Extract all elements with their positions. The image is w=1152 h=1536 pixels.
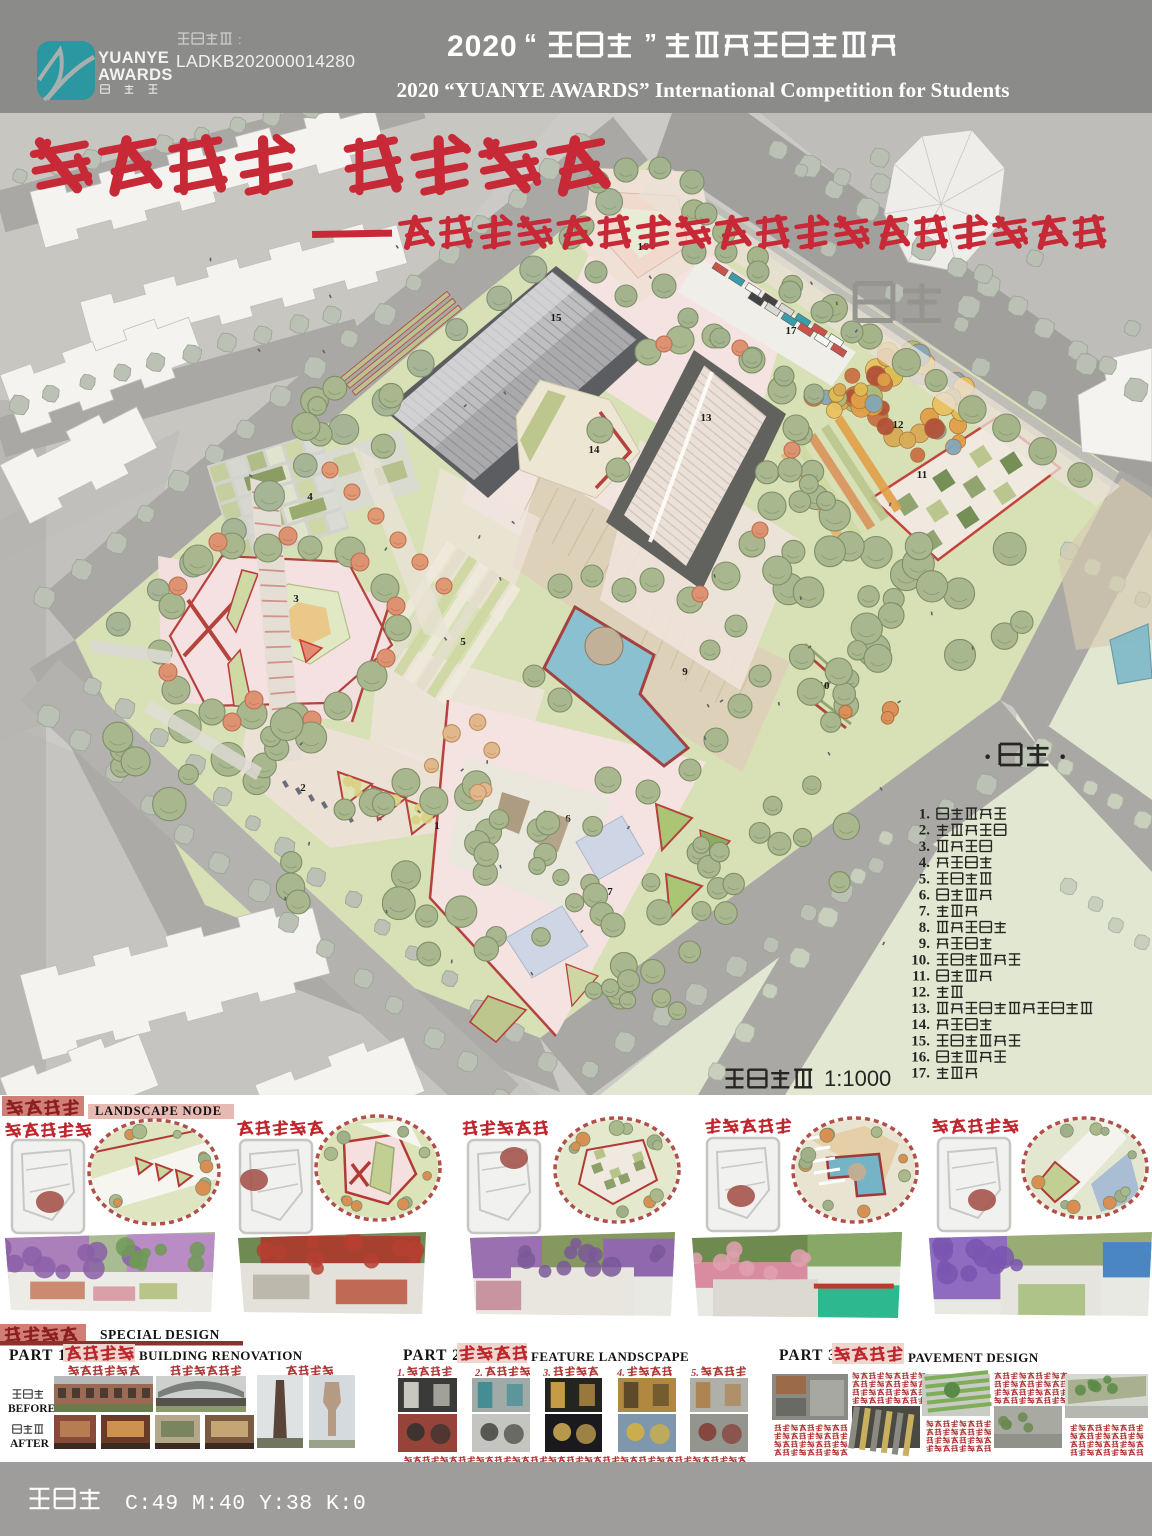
svg-text:C:49 M:40 Y:38 K:0: C:49 M:40 Y:38 K:0: [125, 1492, 366, 1516]
svg-text:AFTER: AFTER: [10, 1438, 50, 1450]
svg-text::: :: [238, 32, 242, 47]
svg-text:2020: 2020: [447, 30, 518, 63]
svg-text:1.: 1.: [397, 1368, 405, 1379]
svg-text:FEATURE LANDSCPAPE: FEATURE LANDSCPAPE: [531, 1349, 689, 1364]
svg-text:LANDSCAPE NODE: LANDSCAPE NODE: [95, 1104, 222, 1118]
svg-text:YUANYE: YUANYE: [98, 49, 169, 67]
svg-text:3.: 3.: [542, 1368, 551, 1379]
svg-text:PART 3: PART 3: [779, 1347, 837, 1364]
svg-text:BUILDING RENOVATION: BUILDING RENOVATION: [139, 1348, 303, 1363]
svg-text:”: ”: [644, 28, 657, 58]
svg-text:5.: 5.: [691, 1368, 699, 1379]
svg-text:PART 2: PART 2: [403, 1347, 461, 1364]
svg-text:LADKB202000014280: LADKB202000014280: [176, 51, 355, 71]
svg-text:AWARDS: AWARDS: [98, 66, 173, 84]
svg-text:“: “: [524, 28, 537, 58]
svg-text:2020 “YUANYE AWARDS” Internati: 2020 “YUANYE AWARDS” International Compe…: [397, 78, 1010, 102]
svg-text:PART 1: PART 1: [9, 1347, 67, 1364]
svg-text:4.: 4.: [616, 1368, 625, 1379]
svg-text:PAVEMENT DESIGN: PAVEMENT DESIGN: [908, 1350, 1039, 1365]
svg-text:BEFORE: BEFORE: [8, 1403, 56, 1415]
svg-text:SPECIAL DESIGN: SPECIAL DESIGN: [100, 1327, 220, 1342]
svg-text:2.: 2.: [474, 1368, 483, 1379]
